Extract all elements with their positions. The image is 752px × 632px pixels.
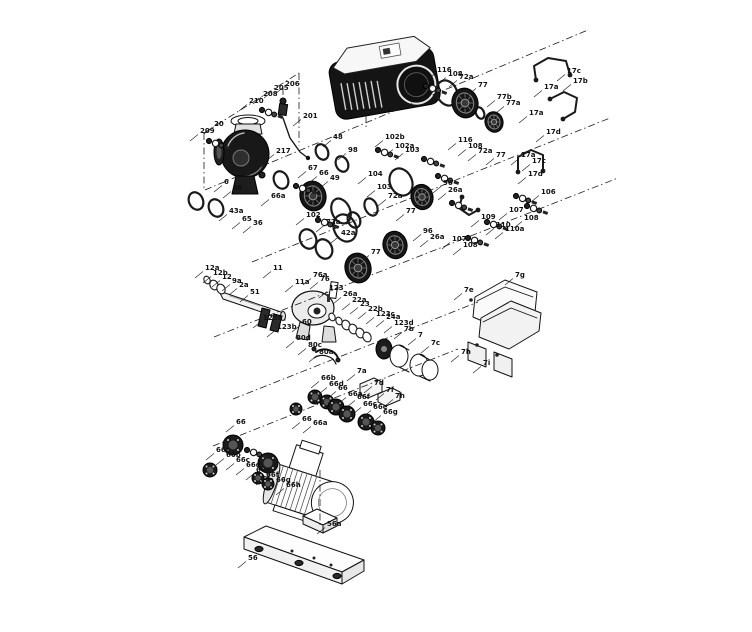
part-label-49: 49: [330, 174, 340, 182]
diagram-canvas: 2092021020820520620121769843a65364898676…: [0, 0, 752, 632]
part-label-80a: 80a: [319, 348, 334, 356]
part-label-17d: 17d: [546, 128, 561, 136]
part-label-66a: 66a: [271, 192, 286, 200]
base-plate: [244, 526, 364, 584]
part-label-123b: 123b: [277, 323, 297, 331]
part-label-7: 7: [418, 331, 423, 339]
part-label-103: 103: [377, 183, 392, 191]
part-label-66a: 66a: [313, 419, 328, 427]
part-label-77: 77: [496, 151, 506, 159]
part-label-66: 66: [319, 169, 329, 177]
part-label-206: 206: [285, 80, 300, 88]
part-label-66: 66: [236, 418, 246, 426]
part-label-66: 66: [338, 384, 348, 392]
part-label-104: 104: [368, 170, 383, 178]
part-label-17a: 17a: [544, 83, 559, 91]
part-label-110a: 110a: [505, 225, 525, 233]
part-label-56a: 56a: [327, 520, 342, 528]
part-label-56: 56: [248, 554, 258, 562]
part-label-77: 77: [371, 248, 381, 256]
part-label-102b: 102b: [385, 133, 405, 141]
part-label-7h: 7h: [395, 392, 405, 400]
part-label-17c: 17c: [567, 67, 581, 75]
guard-plates: [468, 280, 541, 377]
part-label-72a: 72a: [388, 192, 403, 200]
part-label-26a: 26a: [448, 186, 463, 194]
part-label-2a: 2a: [239, 281, 249, 289]
part-label-20: 20: [214, 120, 224, 128]
part-label-109: 109: [481, 213, 496, 221]
diagram-page: 2092021020820520620121769843a65364898676…: [0, 0, 752, 632]
part-label-66g: 66g: [383, 408, 398, 416]
part-label-17c: 17c: [532, 157, 546, 165]
part-label-7f: 7f: [386, 386, 395, 394]
part-label-7b: 7b: [404, 325, 414, 333]
control-box: [325, 34, 442, 121]
part-label-102: 102: [306, 211, 321, 219]
part-label-7c: 7c: [431, 339, 440, 347]
part-label-6: 6: [224, 178, 229, 186]
part-label-11a: 11a: [295, 278, 310, 286]
fan-and-covers: [376, 339, 438, 381]
part-label-66h: 66h: [286, 481, 301, 489]
part-label-17a: 17a: [529, 109, 544, 117]
part-label-217: 217: [276, 147, 291, 155]
part-label-7e: 7e: [464, 286, 474, 294]
part-label-72a: 72a: [478, 147, 493, 155]
part-label-107: 107: [509, 206, 524, 214]
part-label-11: 11: [273, 264, 283, 272]
part-label-77: 77: [478, 81, 488, 89]
part-label-65: 65: [242, 215, 252, 223]
part-label-51: 51: [250, 288, 260, 296]
part-label-7a: 7a: [357, 367, 367, 375]
part-label-72a: 72a: [459, 73, 474, 81]
part-label-77: 77: [406, 207, 416, 215]
part-label-98: 98: [233, 184, 243, 192]
part-label-108: 108: [524, 214, 539, 222]
part-label-98: 98: [348, 146, 358, 154]
part-label-42a: 42a: [341, 229, 356, 237]
part-label-106: 106: [541, 188, 556, 196]
part-label-7h: 7h: [461, 348, 471, 356]
part-label-108: 108: [463, 241, 478, 249]
part-label-36: 36: [253, 219, 263, 227]
part-label-7g: 7g: [515, 271, 525, 279]
part-label-17b: 17b: [573, 77, 588, 85]
part-label-60: 60: [302, 318, 312, 326]
part-label-67: 67: [308, 164, 318, 172]
part-label-17d: 17d: [528, 170, 543, 178]
part-label-66: 66: [302, 415, 312, 423]
part-label-123a: 123a: [263, 314, 283, 322]
part-label-77a: 77a: [506, 99, 521, 107]
part-label-48: 48: [333, 133, 343, 141]
part-label-43a: 43a: [229, 207, 244, 215]
part-label-201: 201: [303, 112, 318, 120]
part-label-7i: 7i: [483, 359, 490, 367]
part-label-76: 76: [320, 275, 330, 283]
part-label-123: 123: [329, 284, 344, 292]
part-label-72a: 72a: [326, 218, 341, 226]
part-label-103: 103: [405, 146, 420, 154]
part-label-26a: 26a: [430, 233, 445, 241]
part-label-12: 12: [222, 273, 232, 281]
part-label-7d: 7d: [374, 379, 384, 387]
